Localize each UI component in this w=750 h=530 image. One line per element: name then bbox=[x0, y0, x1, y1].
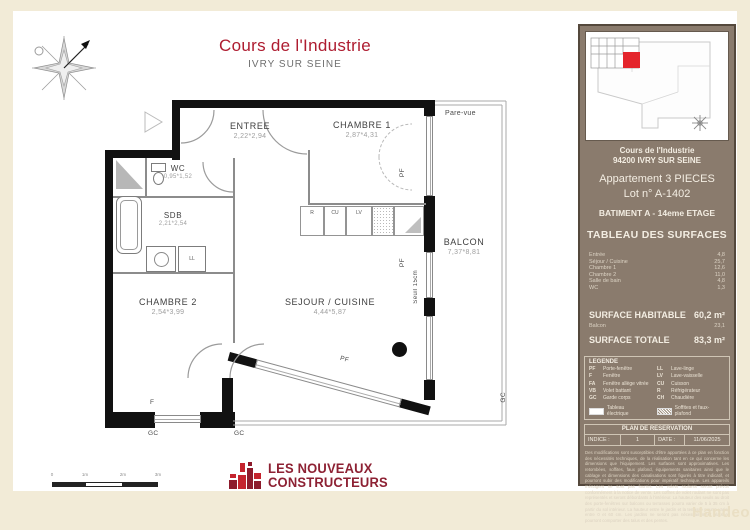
surface-totale-label: SURFACE TOTALE bbox=[589, 335, 670, 345]
gc-label: GC bbox=[500, 392, 507, 403]
balcon-row: Balcon 23,1 bbox=[589, 323, 725, 329]
page-title: Cours de l'Industrie bbox=[110, 36, 480, 56]
abbr: VB bbox=[589, 388, 603, 395]
legend-row: GCGarde corps bbox=[589, 395, 657, 402]
floorplan-page: Cours de l'Industrie IVRY SUR SEINE LL R… bbox=[0, 0, 750, 530]
partition bbox=[145, 158, 147, 198]
project-city: 94200 IVRY SUR SEINE bbox=[580, 156, 734, 166]
label: WC bbox=[589, 285, 598, 292]
site-map-drawing bbox=[586, 32, 728, 140]
project-name-block: Cours de l'Industrie 94200 IVRY SUR SEIN… bbox=[580, 146, 734, 167]
wall bbox=[105, 150, 180, 158]
abbr: PF bbox=[589, 366, 603, 373]
legend-icons-row: Tableau électrique Soffites et faux-plaf… bbox=[589, 405, 725, 417]
soffit-hatch-icon bbox=[657, 408, 672, 415]
room-chambre2: CHAMBRE 2 2,54*3,99 bbox=[118, 297, 218, 316]
lot-number: Lot n° A-1402 bbox=[580, 187, 734, 202]
legend-row: RRéfrigérateur bbox=[657, 388, 725, 395]
scale-segment bbox=[85, 482, 123, 487]
legend-right-column: LLLave-lingeLVLave-vaisselleCUCuissonRRé… bbox=[657, 366, 725, 402]
surface-totale-value: 83,3 m² bbox=[694, 335, 725, 345]
surface-habitable-row: SURFACE HABITABLE 60,2 m² bbox=[589, 310, 725, 320]
wall bbox=[105, 412, 155, 428]
counter-box bbox=[372, 206, 394, 236]
label: Chaudière bbox=[671, 395, 694, 402]
partition bbox=[113, 272, 235, 274]
surface-row: Chambre 112,6 bbox=[589, 265, 725, 272]
abbr: LL bbox=[657, 366, 671, 373]
abbr: R bbox=[657, 388, 671, 395]
surface-row: Entrée4,8 bbox=[589, 252, 725, 259]
partition bbox=[308, 203, 426, 205]
logo-line1: LES NOUVEAUX bbox=[268, 462, 388, 476]
seuil-label: Seuil 15cm bbox=[413, 270, 419, 304]
washing-machine-box: LL bbox=[178, 246, 206, 272]
label: Séjour / Cuisine bbox=[589, 259, 628, 266]
surface-habitable-value: 60,2 m² bbox=[694, 310, 725, 320]
reservation-title: PLAN DE RESERVATION bbox=[585, 425, 729, 435]
soffit-label: Soffites et faux-plafond bbox=[675, 405, 725, 417]
wall bbox=[222, 378, 233, 428]
gc-label: GC bbox=[234, 430, 244, 437]
indice-value: 1 bbox=[621, 435, 655, 446]
scale-segment bbox=[123, 482, 158, 487]
reservation-table: PLAN DE RESERVATION INDICE : 1 DATE : 11… bbox=[584, 424, 730, 446]
watermark: Handeo bbox=[692, 504, 750, 521]
scale-tick-label: 2m bbox=[120, 472, 126, 477]
room-name: CHAMBRE 2 bbox=[118, 297, 218, 307]
value: 25,7 bbox=[714, 259, 725, 266]
apartment-location-marker bbox=[623, 52, 640, 68]
room-dims: 4,44*5,87 bbox=[255, 309, 405, 316]
room-name: WC bbox=[148, 164, 208, 173]
abbr: FA bbox=[589, 381, 603, 388]
builder-logo-icon bbox=[228, 461, 262, 491]
map-compass-icon bbox=[692, 115, 708, 131]
surface-totale-row: SURFACE TOTALE 83,3 m² bbox=[589, 335, 725, 345]
label: Chambre 2 bbox=[589, 272, 616, 279]
wall bbox=[424, 380, 435, 400]
label: Lave-linge bbox=[671, 366, 694, 373]
apartment-block: Appartement 3 PIECES Lot n° A-1402 bbox=[580, 172, 734, 202]
abbr: F bbox=[589, 373, 603, 380]
label: Cuisson bbox=[671, 381, 689, 388]
legend-row: FFenêtre bbox=[589, 373, 657, 380]
room-balcon: BALCON 7,37*8,81 bbox=[425, 237, 503, 256]
room-wc: WC 0,95*1,52 bbox=[148, 164, 208, 180]
surface-row: Salle de bain4,8 bbox=[589, 278, 725, 285]
abbr: GC bbox=[589, 395, 603, 402]
kitchen-sink bbox=[394, 206, 424, 236]
gc-label: GC bbox=[148, 430, 158, 437]
balcon-value: 23,1 bbox=[714, 323, 725, 329]
label: Garde corps bbox=[603, 395, 631, 402]
room-sejour: SEJOUR / CUISINE 4,44*5,87 bbox=[255, 297, 405, 316]
washbasin bbox=[146, 246, 176, 272]
wall bbox=[105, 150, 113, 420]
scale-segment bbox=[52, 482, 85, 487]
pf-label: PF bbox=[399, 168, 406, 177]
label: Chambre 1 bbox=[589, 265, 616, 272]
abbr: CH bbox=[657, 395, 671, 402]
room-chambre1: CHAMBRE 1 2,87*4,31 bbox=[302, 120, 422, 139]
value: 4,8 bbox=[717, 278, 725, 285]
room-name: SDB bbox=[138, 211, 208, 220]
apartment-type: Appartement 3 PIECES bbox=[580, 172, 734, 187]
room-dims: 2,21*2,54 bbox=[138, 221, 208, 227]
structural-column bbox=[392, 342, 407, 357]
value: 12,6 bbox=[714, 265, 725, 272]
legend-box: LEGENDE PFPorte-fenêtreFFenêtreFAFenêtre… bbox=[584, 356, 730, 420]
partition bbox=[308, 150, 310, 205]
date-label: DATE : bbox=[655, 435, 685, 446]
label: Réfrigérateur bbox=[671, 388, 700, 395]
technical-duct bbox=[116, 160, 143, 189]
room-dims: 0,95*1,52 bbox=[148, 174, 208, 180]
scale-bar: 0 1m 2m 3m bbox=[50, 472, 166, 492]
pare-vue-label: Pare-vue bbox=[445, 110, 476, 117]
fridge-box: R bbox=[300, 206, 324, 236]
kitchen-counter: R CU LV bbox=[300, 206, 424, 236]
cooktop-box: CU bbox=[324, 206, 346, 236]
logo-line2: CONSTRUCTEURS bbox=[268, 476, 388, 490]
partition bbox=[233, 158, 235, 343]
label: Volet battant bbox=[603, 388, 631, 395]
scale-tick-label: 3m bbox=[155, 472, 161, 477]
wall bbox=[424, 298, 435, 316]
window-porte-fenetre bbox=[426, 316, 433, 380]
value: 4,8 bbox=[717, 252, 725, 259]
site-map bbox=[585, 31, 729, 141]
date-value: 11/06/2025 bbox=[685, 435, 729, 446]
surface-row: Séjour / Cuisine25,7 bbox=[589, 259, 725, 266]
window-fenetre bbox=[154, 415, 201, 423]
reservation-row: INDICE : 1 DATE : 11/06/2025 bbox=[585, 435, 729, 446]
value: 1,3 bbox=[717, 285, 725, 292]
surfaces-rows: Entrée4,8Séjour / Cuisine25,7Chambre 112… bbox=[589, 252, 725, 292]
label: Porte-fenêtre bbox=[603, 366, 632, 373]
room-entree: ENTREE 2,22*2,94 bbox=[195, 121, 305, 140]
legend-title: LEGENDE bbox=[589, 359, 725, 365]
page-subtitle: IVRY SUR SEINE bbox=[110, 59, 480, 70]
label: Lave-vaisselle bbox=[671, 373, 703, 380]
value: 11,0 bbox=[715, 272, 725, 279]
legend-row: PFPorte-fenêtre bbox=[589, 366, 657, 373]
room-name: SEJOUR / CUISINE bbox=[255, 297, 405, 307]
balcon-label: Balcon bbox=[589, 323, 606, 329]
legend-row: CHChaudière bbox=[657, 395, 725, 402]
room-dims: 2,22*2,94 bbox=[195, 133, 305, 140]
scale-tick-label: 0 bbox=[51, 472, 54, 477]
legend-left-column: PFPorte-fenêtreFFenêtreFAFenêtre allège … bbox=[589, 366, 657, 402]
room-name: ENTREE bbox=[195, 121, 305, 131]
surfaces-table-title: TABLEAU DES SURFACES bbox=[580, 229, 734, 241]
electrical-panel-label: Tableau électrique bbox=[607, 405, 647, 417]
label: Entrée bbox=[589, 252, 605, 259]
legend-row: VBVolet battant bbox=[589, 388, 657, 395]
room-dims: 2,87*4,31 bbox=[302, 132, 422, 139]
surface-habitable-label: SURFACE HABITABLE bbox=[589, 310, 686, 320]
room-sdb: SDB 2,21*2,54 bbox=[138, 211, 208, 227]
title-block: Cours de l'Industrie IVRY SUR SEINE bbox=[110, 36, 480, 70]
building-floor: BATIMENT A - 14eme ETAGE bbox=[580, 208, 734, 218]
electrical-panel-icon bbox=[589, 408, 604, 415]
room-name: BALCON bbox=[425, 237, 503, 247]
indice-label: INDICE : bbox=[585, 435, 621, 446]
surface-row: WC1,3 bbox=[589, 285, 725, 292]
dishwasher-box: LV bbox=[346, 206, 372, 236]
window-porte-fenetre bbox=[426, 116, 433, 196]
info-sidebar: Cours de l'Industrie 94200 IVRY SUR SEIN… bbox=[578, 24, 736, 486]
label: Fenêtre bbox=[603, 373, 620, 380]
ll-label: LL bbox=[189, 256, 195, 262]
builder-logo: LES NOUVEAUX CONSTRUCTEURS bbox=[228, 461, 393, 491]
room-name: CHAMBRE 1 bbox=[302, 120, 422, 130]
abbr: CU bbox=[657, 381, 671, 388]
label: Fenêtre allège vitrée bbox=[603, 381, 649, 388]
legend-row: FAFenêtre allège vitrée bbox=[589, 381, 657, 388]
project-name: Cours de l'Industrie bbox=[580, 146, 734, 156]
f-label: F bbox=[150, 399, 154, 406]
wall bbox=[424, 100, 435, 116]
legend-row: LVLave-vaisselle bbox=[657, 373, 725, 380]
legend-row: CUCuisson bbox=[657, 381, 725, 388]
room-dims: 7,37*8,81 bbox=[425, 249, 503, 256]
pf-label: PF bbox=[399, 258, 406, 267]
builder-logo-text: LES NOUVEAUX CONSTRUCTEURS bbox=[268, 462, 388, 490]
abbr: LV bbox=[657, 373, 671, 380]
wall bbox=[172, 100, 430, 108]
legend-row: LLLave-linge bbox=[657, 366, 725, 373]
label: Salle de bain bbox=[589, 278, 621, 285]
scale-tick-label: 1m bbox=[82, 472, 88, 477]
surface-row: Chambre 211,0 bbox=[589, 272, 725, 279]
room-dims: 2,54*3,99 bbox=[118, 309, 218, 316]
window-porte-fenetre bbox=[426, 252, 433, 298]
